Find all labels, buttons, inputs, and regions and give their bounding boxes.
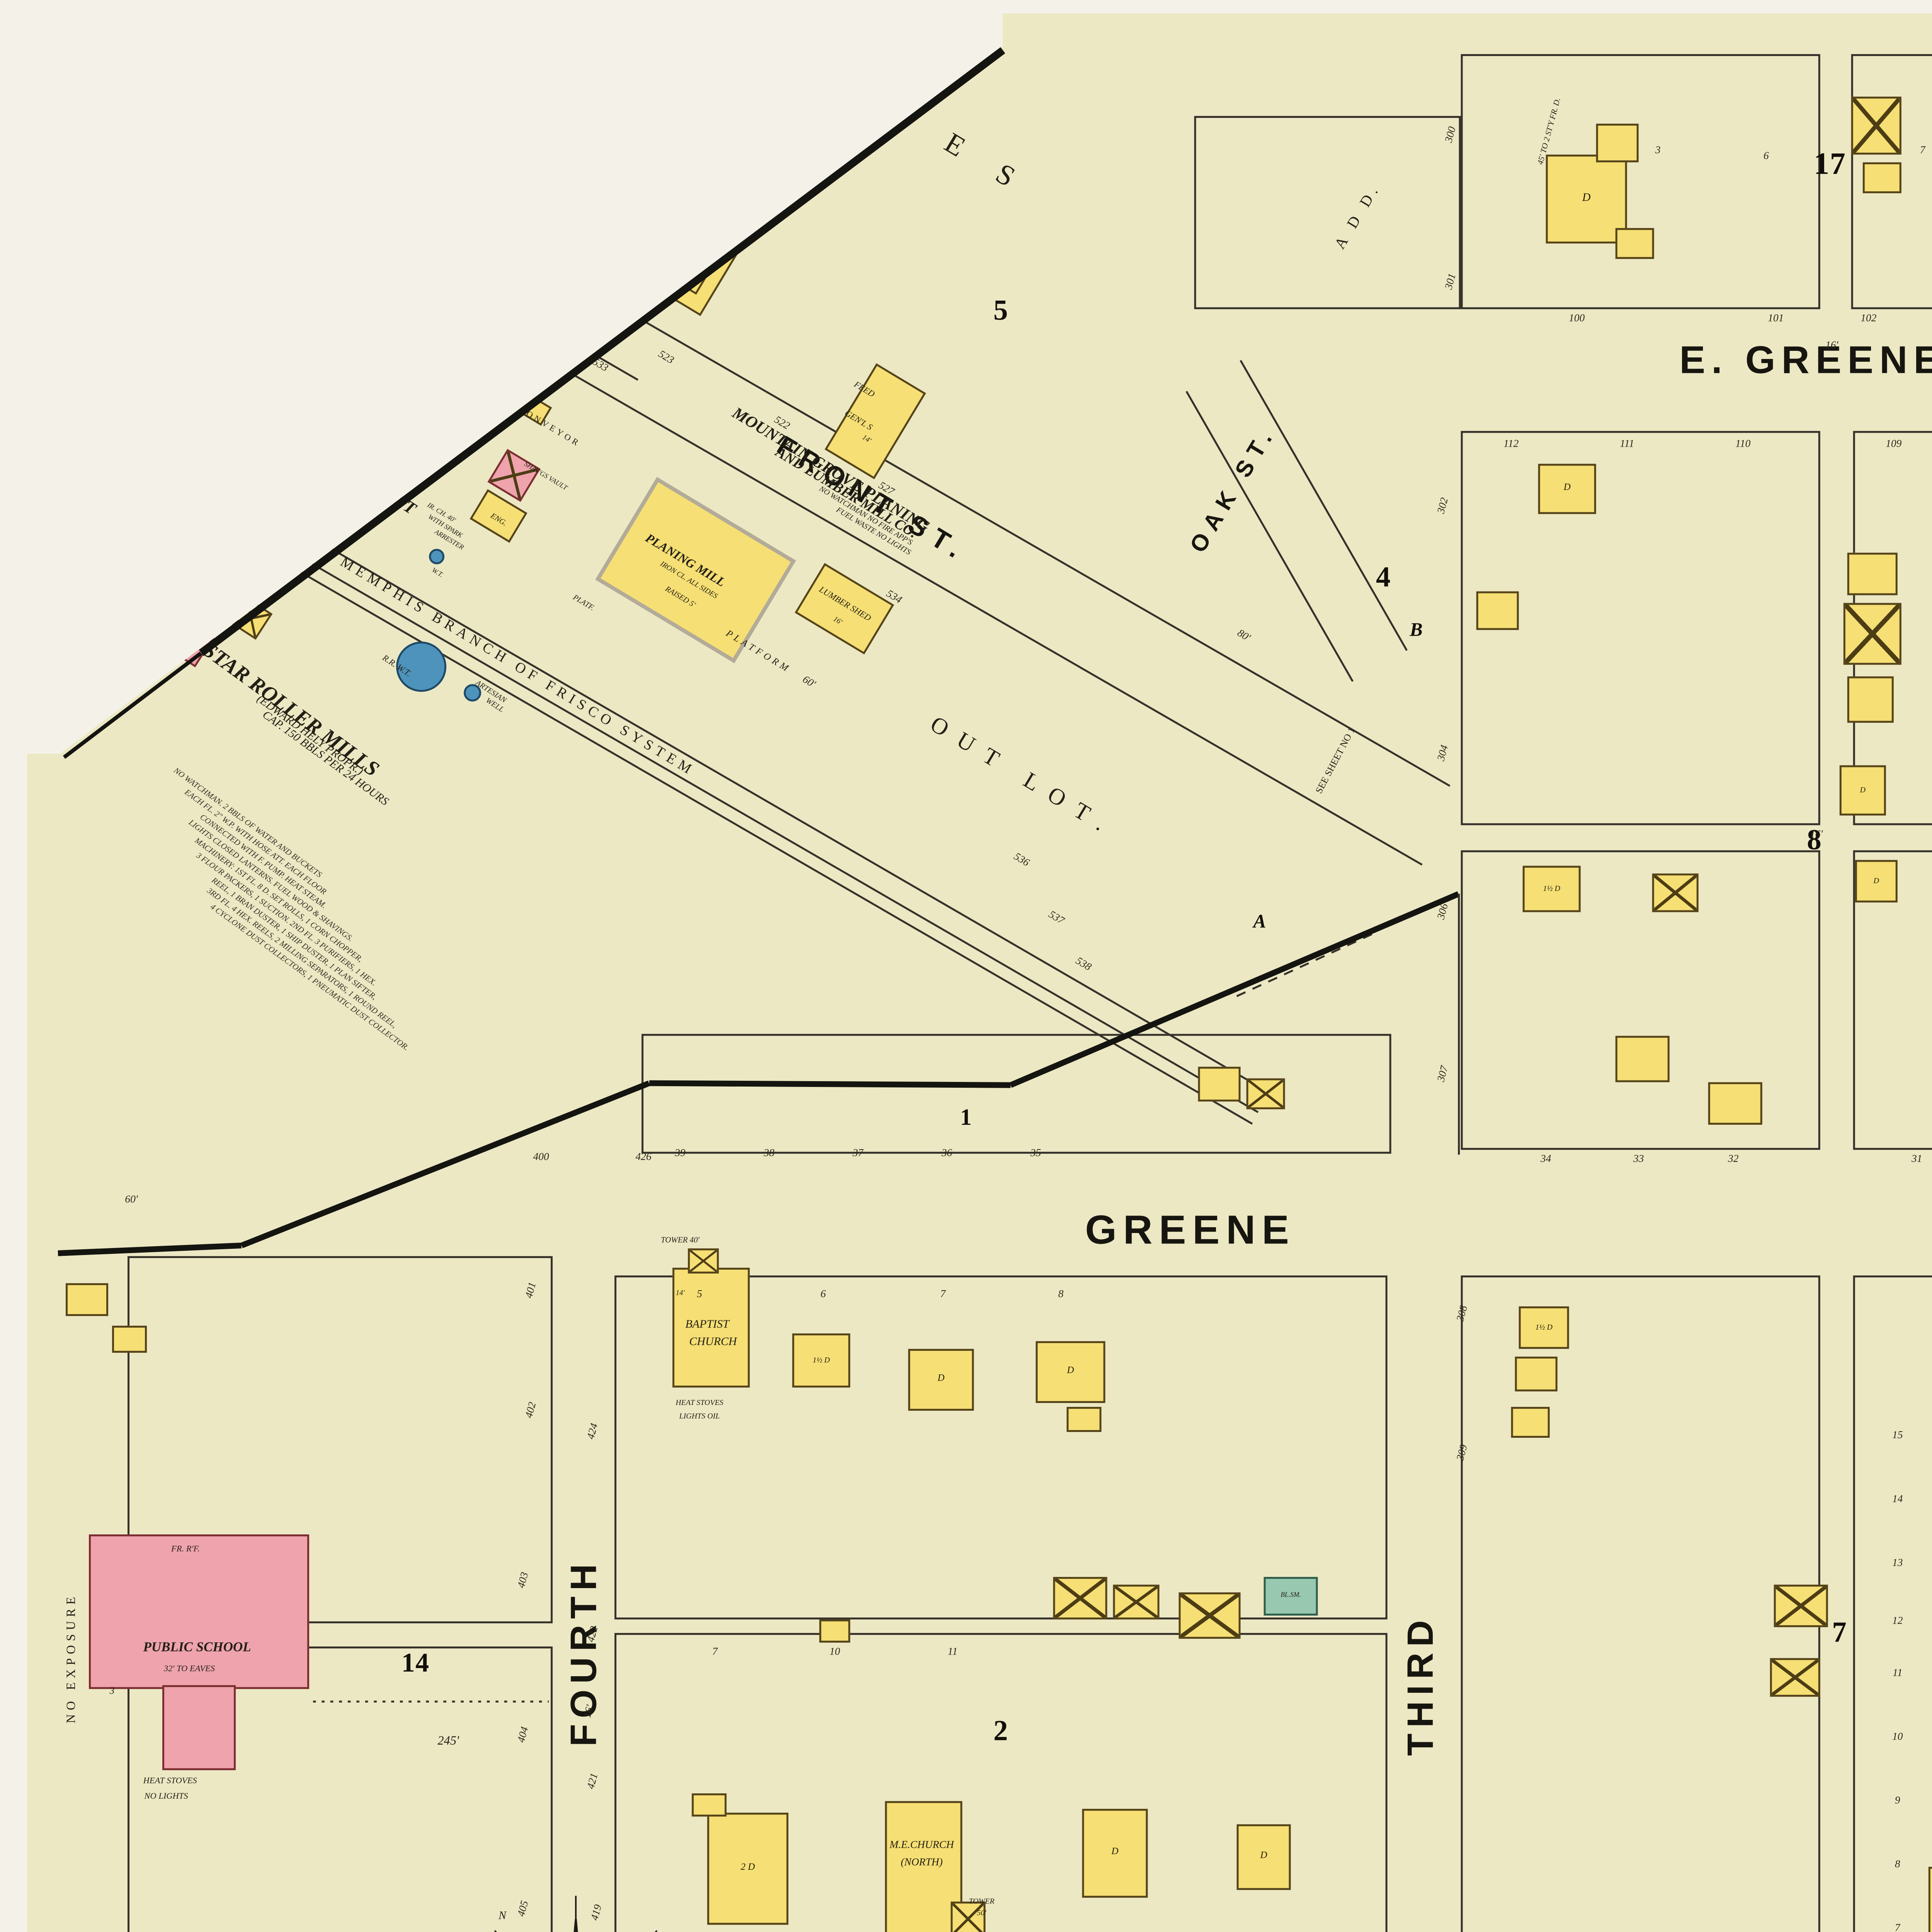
boundary-line — [63, 651, 202, 759]
margin-left — [0, 0, 27, 1932]
margin-top — [0, 0, 1932, 14]
compass-rose-icon — [456, 1892, 873, 1932]
boundary-line — [58, 1242, 242, 1255]
district-boundary-lines — [0, 0, 1932, 1932]
boundary-line — [199, 47, 1005, 656]
boundary-line — [649, 1079, 1010, 1087]
boundary-line — [1009, 890, 1460, 1087]
sanborn-map-sheet: DDDDDDDD1½ DD1½ DDDBL.SM.2 DDD1½ D1½ DDD… — [0, 0, 1932, 1932]
boundary-line — [1458, 893, 1460, 1154]
boundary-line — [240, 1080, 650, 1247]
